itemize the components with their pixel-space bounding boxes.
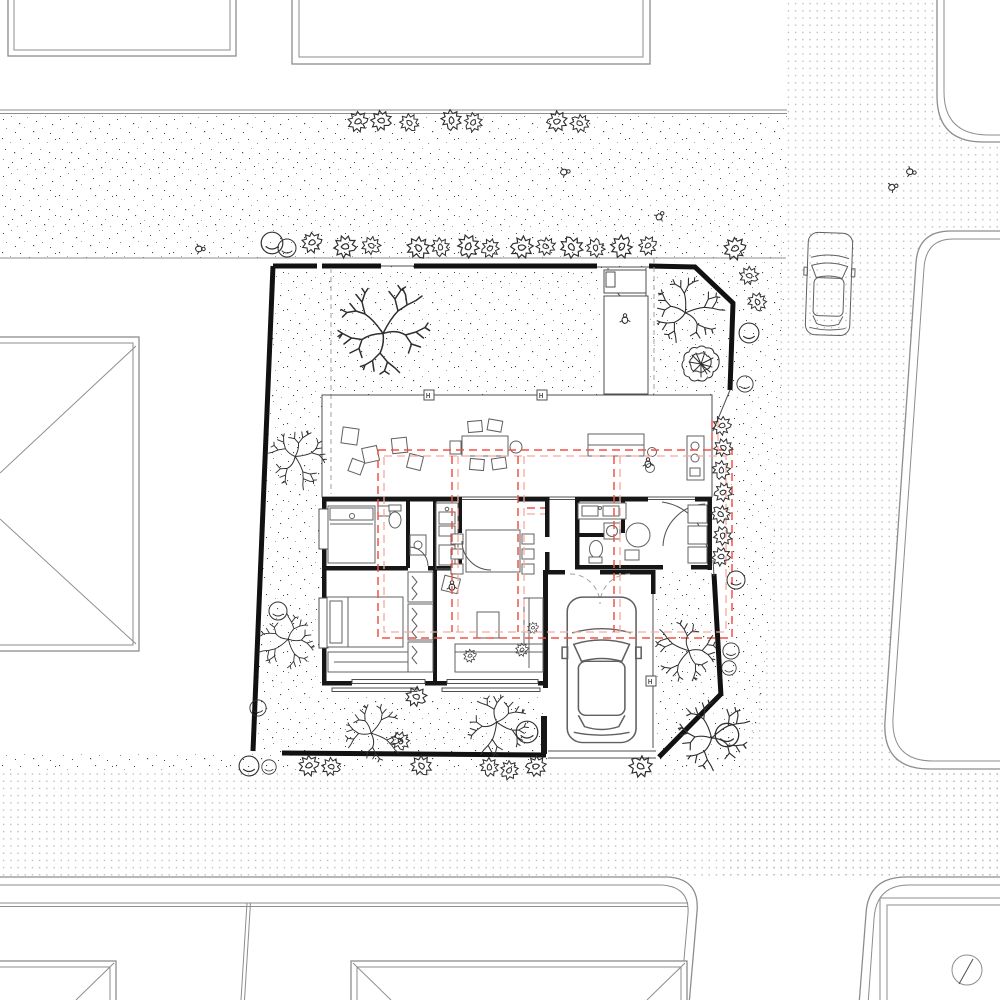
wardrobe: [408, 572, 433, 672]
building-bottom-middle: [351, 961, 687, 1000]
dining-room: [451, 530, 534, 574]
building-left: [0, 337, 139, 651]
parcel-top-right: [937, 0, 1000, 142]
site-plan-canvas: H H H: [0, 0, 1000, 1000]
building-bottom-left: [0, 961, 116, 1000]
outdoor-counter: [687, 436, 704, 480]
window-west-1: [319, 509, 328, 549]
column-marker: H: [648, 678, 652, 686]
parcel-bottom-right: [859, 877, 1000, 1000]
column-marker: H: [539, 392, 543, 400]
building-top-left: [8, 0, 236, 56]
building-top-middle: [292, 0, 650, 64]
parcel-bottom-left: [0, 877, 697, 1000]
column-marker: H: [426, 392, 430, 400]
site-plan-drawing: H H H: [0, 0, 1000, 1000]
